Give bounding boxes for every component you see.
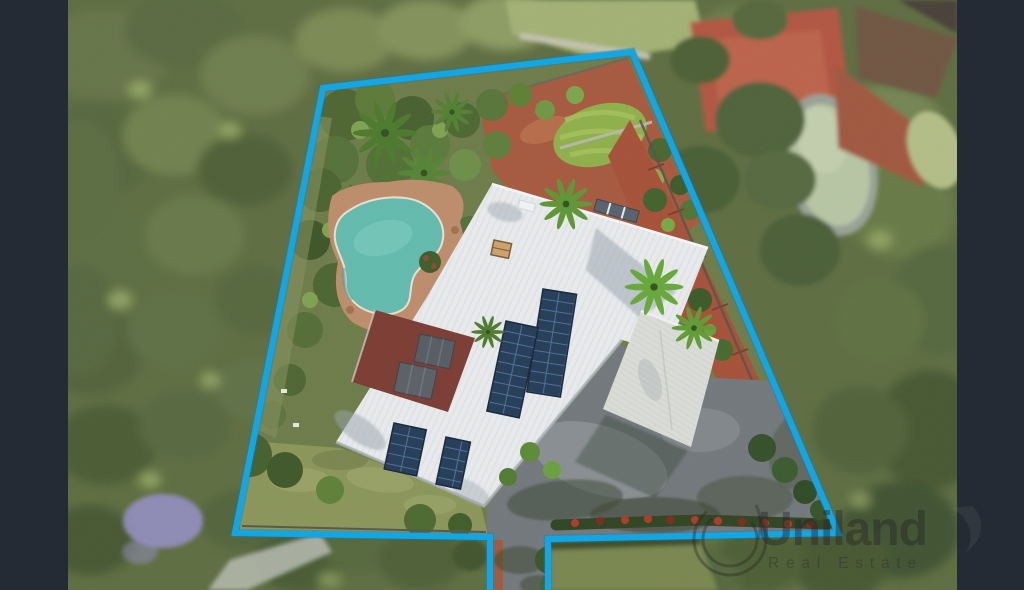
watermark-brand: Uniland [758, 503, 927, 556]
watermark-tagline: Real Estate [768, 555, 923, 572]
aerial-photo: Uniland Real Estate [0, 0, 1024, 590]
right-frame-bar [957, 0, 1024, 590]
left-frame-bar [0, 0, 68, 590]
aerial-photo-frame: Uniland Real Estate [0, 0, 1024, 590]
